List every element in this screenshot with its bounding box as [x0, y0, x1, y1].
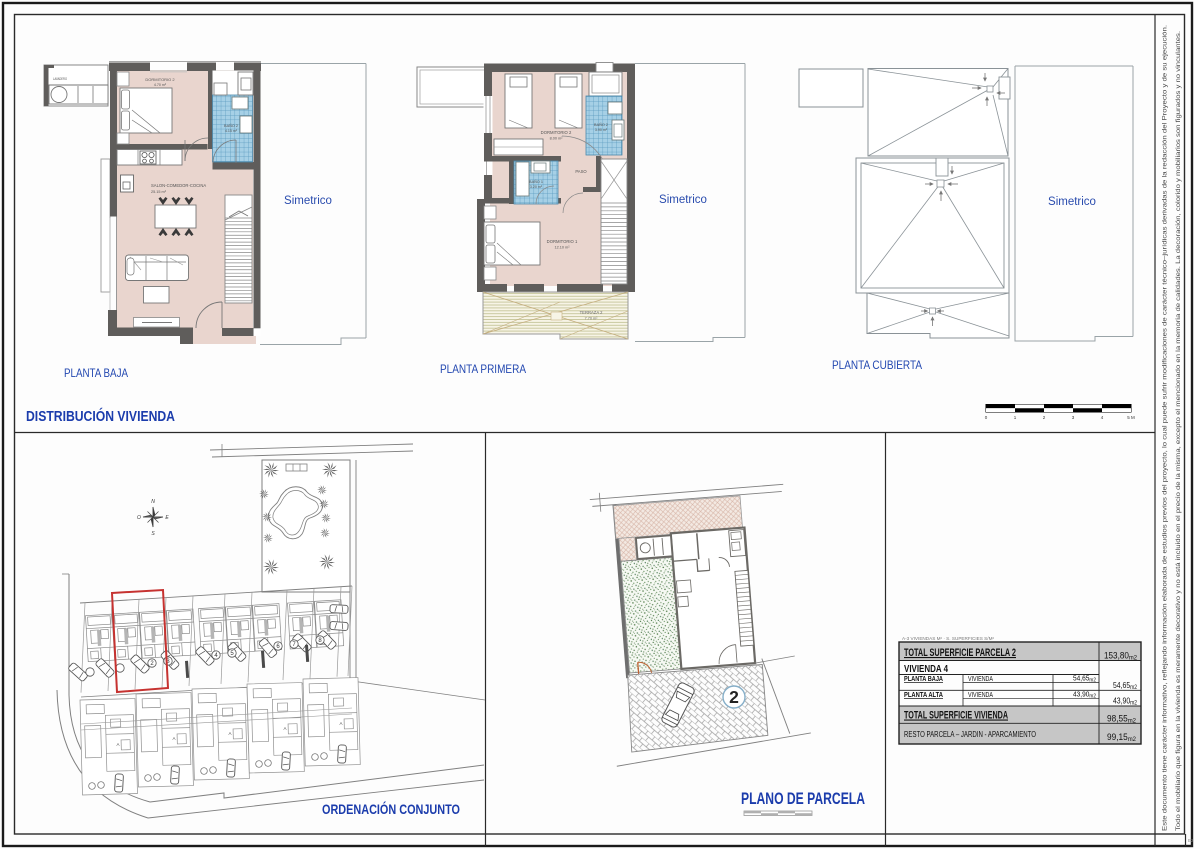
svg-text:TERRAZA 2: TERRAZA 2 — [580, 310, 603, 315]
svg-text:A: A — [228, 731, 231, 736]
svg-text:PASO: PASO — [575, 169, 587, 174]
svg-text:A: A — [339, 721, 342, 726]
svg-text:TOTAL SUPERFICIE VIVIENDA: TOTAL SUPERFICIE VIVIENDA — [904, 710, 1008, 722]
svg-text:A-3 VIVIENDAS M² · S. SUPERFIC: A-3 VIVIENDAS M² · S. SUPERFICIES S/M² — [902, 636, 995, 641]
svg-text:SALON-COMEDOR-COCINA: SALON-COMEDOR-COCINA — [151, 183, 206, 188]
svg-text:PLANO DE PARCELA: PLANO DE PARCELA — [741, 790, 865, 808]
svg-text:DORMITORIO 2: DORMITORIO 2 — [145, 77, 175, 82]
svg-text:4.70 m²: 4.70 m² — [154, 83, 167, 87]
svg-text:PLANTA BAJA: PLANTA BAJA — [904, 674, 943, 683]
svg-text:5 M: 5 M — [1127, 415, 1135, 420]
svg-text:PLANTA ALTA: PLANTA ALTA — [904, 690, 943, 699]
svg-text:DORMITORIO 2: DORMITORIO 2 — [541, 130, 572, 135]
svg-text:A: A — [116, 742, 119, 747]
svg-text:Simetrico: Simetrico — [1048, 196, 1096, 208]
svg-text:A: A — [172, 736, 175, 741]
svg-text:VIVIENDA: VIVIENDA — [968, 692, 993, 699]
svg-text:7.70 m²: 7.70 m² — [585, 317, 599, 321]
svg-text:ORDENACIÓN CONJUNTO: ORDENACIÓN CONJUNTO — [322, 800, 460, 817]
svg-text:BAÑO 2: BAÑO 2 — [224, 123, 238, 128]
svg-text:2: 2 — [729, 687, 739, 707]
svg-text:DISTRIBUCIÓN VIVIENDA: DISTRIBUCIÓN VIVIENDA — [26, 407, 175, 425]
svg-text:VIVIENDA: VIVIENDA — [968, 676, 993, 683]
svg-text:54,65m2: 54,65m2 — [1073, 676, 1096, 684]
svg-text:A: A — [283, 726, 286, 731]
svg-text:Todo el mobiliario que figura: Todo el mobiliario que figura en la vivi… — [1175, 31, 1182, 831]
svg-text:Simetrico: Simetrico — [659, 194, 707, 206]
svg-text:LAVADERO: LAVADERO — [53, 77, 67, 81]
svg-text:N: N — [151, 499, 155, 505]
svg-text:43,90m2: 43,90m2 — [1073, 692, 1096, 700]
svg-text:3.20 m²: 3.20 m² — [530, 185, 543, 189]
svg-text:BAÑO 2: BAÑO 2 — [594, 122, 608, 127]
svg-text:12.10 m²: 12.10 m² — [555, 246, 571, 250]
svg-text:PLANTA BAJA: PLANTA BAJA — [64, 368, 128, 380]
svg-text:25.15 m²: 25.15 m² — [151, 190, 167, 194]
svg-text:RESTO PARCELA – JARDIN - APAR: RESTO PARCELA – JARDIN - APARCAMIENTO — [904, 730, 1036, 739]
svg-text:PLANTA CUBIERTA: PLANTA CUBIERTA — [832, 358, 922, 372]
svg-text:3.90 m²: 3.90 m² — [595, 128, 608, 132]
svg-text:PLANTA PRIMERA: PLANTA PRIMERA — [440, 364, 526, 376]
svg-text:BAÑO 1: BAÑO 1 — [529, 179, 543, 184]
svg-text:4.15 m²: 4.15 m² — [225, 129, 238, 133]
svg-text:Este documento tiene carácter: Este documento tiene carácter informativ… — [1162, 25, 1169, 831]
svg-text:DORMITORIO 1: DORMITORIO 1 — [547, 239, 578, 244]
svg-text:8.00 m²: 8.00 m² — [550, 137, 564, 141]
svg-text:O: O — [137, 515, 141, 521]
svg-text:TOTAL SUPERFICIE PARCELA 2: TOTAL SUPERFICIE PARCELA 2 — [904, 647, 1016, 659]
svg-text:Simetrico: Simetrico — [284, 195, 332, 207]
svg-text:E2: E2 — [1188, 838, 1194, 843]
